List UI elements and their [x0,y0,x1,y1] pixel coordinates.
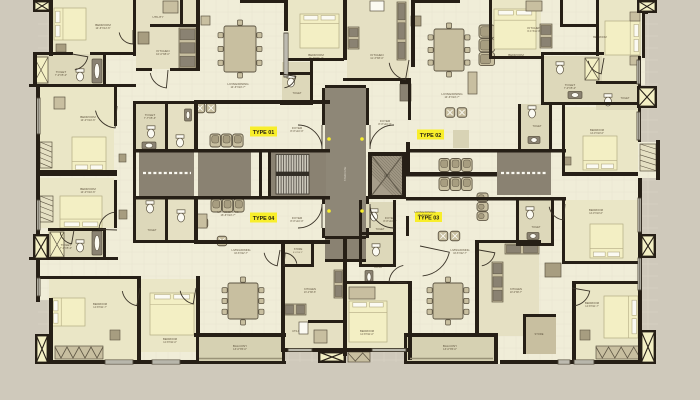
svg-text:TYPE 02: TYPE 02 [420,133,442,139]
svg-text:STAIRCASE: STAIRCASE [343,166,347,181]
svg-text:TOILET: TOILET [620,96,629,100]
svg-text:14'-6"X22'-7": 14'-6"X22'-7" [444,95,459,99]
svg-text:13'-2"X8'-6": 13'-2"X8'-6" [304,291,316,294]
svg-text:14'-0"X10'-6": 14'-0"X10'-6" [80,190,95,194]
svg-text:14'-6"X22'-7": 14'-6"X22'-7" [230,85,245,89]
svg-text:14'-8"X11'-7": 14'-8"X11'-7" [93,306,107,309]
svg-text:TOILET: TOILET [292,91,301,95]
svg-text:12'-8"X11'-0": 12'-8"X11'-0" [163,341,177,344]
svg-text:TYPE 01: TYPE 01 [253,130,275,136]
svg-text:14'-0"X10'-6": 14'-0"X10'-6" [590,132,604,135]
svg-text:14'-0"X10'-6": 14'-0"X10'-6" [80,118,95,122]
svg-text:14'-8"X11'-7": 14'-8"X11'-7" [585,305,599,308]
svg-text:16'-6"X22'-7": 16'-6"X22'-7" [234,252,248,255]
svg-text:TOILET: TOILET [532,124,541,128]
svg-text:TYPE 04: TYPE 04 [253,216,275,222]
svg-text:TOILET: TOILET [375,227,384,231]
svg-text:5'-0"X4'-1": 5'-0"X4'-1" [293,252,303,254]
svg-text:16'-6"X22'-7": 16'-6"X22'-7" [220,213,235,217]
svg-text:16'-6"X22'-7": 16'-6"X22'-7" [417,213,432,217]
svg-text:STORE: STORE [535,332,544,336]
svg-text:TOILET: TOILET [147,228,156,232]
svg-text:TOILET: TOILET [531,225,540,229]
svg-text:14'-6"X12'-6": 14'-6"X12'-6" [95,26,110,30]
svg-text:16'-6"X22'-7": 16'-6"X22'-7" [453,252,467,255]
svg-text:BEDROOM: BEDROOM [593,35,606,39]
svg-text:8'-0"x10'-0": 8'-0"x10'-0" [290,219,303,223]
svg-text:13'-0"X5'-0": 13'-0"X5'-0" [233,347,247,351]
svg-text:STORE: STORE [294,248,303,251]
svg-text:11'-3"X8'-0": 11'-3"X8'-0" [370,56,384,60]
svg-text:13'-0"X5'-0": 13'-0"X5'-0" [443,347,457,351]
svg-text:10'-0"X8'-7": 10'-0"X8'-7" [510,291,522,294]
svg-text:7'-0"X5'-0": 7'-0"X5'-0" [564,86,576,90]
svg-text:UTILITY: UTILITY [152,15,163,19]
svg-text:LIFT: LIFT [384,174,390,178]
svg-text:9'-1"X11'-6": 9'-1"X11'-6" [527,29,541,33]
svg-text:12'-8"X11'-0": 12'-8"X11'-0" [360,333,374,336]
svg-text:14'-0"X10'-6": 14'-0"X10'-6" [589,212,603,215]
svg-text:8'-0"x10'-0": 8'-0"x10'-0" [290,129,303,133]
svg-text:7'-0"X5'-0": 7'-0"X5'-0" [55,73,67,77]
svg-text:7'-7"X5'-3": 7'-7"X5'-3" [144,116,156,120]
svg-text:10'-0"X8'-0": 10'-0"X8'-0" [156,52,170,56]
svg-text:7'-0"X5'-0": 7'-0"X5'-0" [60,246,72,250]
